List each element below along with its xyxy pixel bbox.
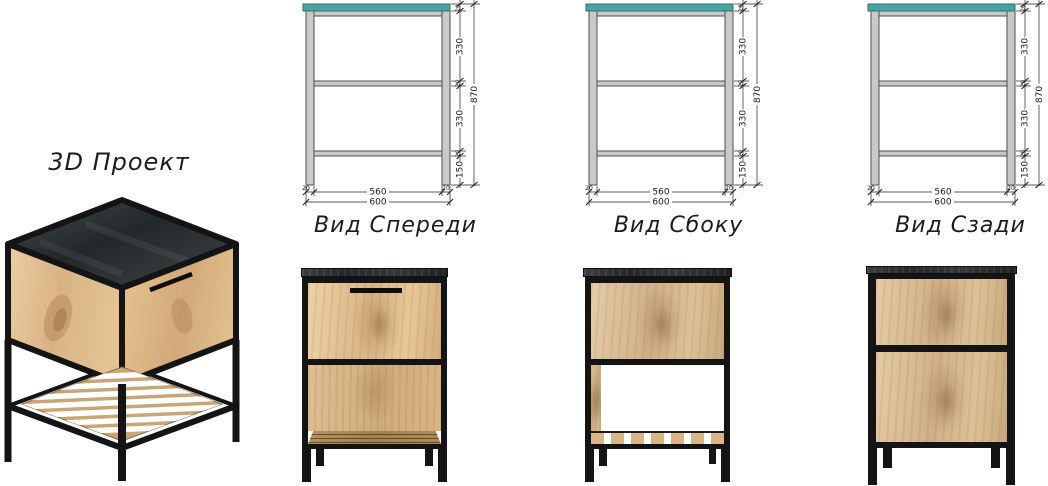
leg [1006, 448, 1015, 485]
render-front [302, 268, 447, 482]
top-slab [301, 268, 448, 277]
svg-text:20: 20 [585, 185, 593, 192]
svg-text:20: 20 [442, 185, 450, 192]
top-slab [866, 266, 1017, 274]
svg-text:20: 20 [456, 150, 462, 157]
view-label-side: Вид Сбоку [576, 213, 781, 238]
dimension-labels-horizontal: 20 20 560 600 [302, 185, 450, 208]
slatted-shelf [591, 431, 724, 444]
leg-back [425, 449, 433, 466]
svg-text:330: 330 [739, 110, 749, 127]
svg-text:330: 330 [456, 38, 466, 55]
frame-right [724, 365, 730, 449]
technical-drawing-front: 330 330 150 20 20 20 870 [293, 0, 498, 210]
page-title: 3D Проект [6, 148, 232, 176]
svg-text:600: 600 [369, 198, 386, 208]
view-label-front: Вид Спереди [293, 213, 498, 238]
leg [585, 449, 594, 482]
svg-text:20: 20 [1021, 150, 1027, 157]
leg-back [709, 449, 716, 464]
technical-drawing-side: 330 330 150 20 20 20 870 [576, 0, 781, 210]
leg [868, 448, 877, 485]
svg-text:330: 330 [456, 110, 466, 127]
leg [302, 449, 311, 482]
dimension-labels-vertical: 330 330 150 20 20 20 870 [455, 4, 480, 178]
svg-text:600: 600 [934, 198, 951, 208]
back-panel-lower [876, 352, 1007, 442]
leg-front [883, 448, 892, 468]
top-panel-teal [303, 4, 450, 11]
render-side [585, 268, 730, 482]
dimension-labels-horizontal: 20 20 560 600 [585, 185, 733, 208]
svg-text:20: 20 [739, 150, 745, 157]
design-sheet: 3D Проект [0, 0, 1048, 486]
column-back-view: 330 330 150 20 20 20 870 [858, 0, 1048, 486]
svg-text:870: 870 [1035, 86, 1045, 103]
frame-geometry [303, 4, 450, 185]
frame-geometry [586, 4, 733, 185]
svg-text:150: 150 [1021, 161, 1031, 178]
svg-text:20: 20 [1021, 4, 1027, 11]
render-back [868, 266, 1015, 485]
drawer-front-panel [308, 283, 441, 359]
svg-text:870: 870 [470, 86, 480, 103]
drawer-handle [350, 288, 402, 293]
back-panel-visible [308, 365, 441, 431]
svg-text:600: 600 [652, 198, 669, 208]
svg-text:20: 20 [1007, 185, 1015, 192]
dimension-labels-vertical: 330 330 150 20 20 20 870 [1020, 4, 1045, 178]
leg-front [991, 448, 1000, 468]
svg-text:20: 20 [1021, 80, 1027, 87]
technical-drawing: 330 330 150 20 20 20 870 [293, 0, 498, 210]
side-panel [591, 283, 724, 359]
svg-text:330: 330 [1021, 38, 1031, 55]
svg-text:20: 20 [456, 80, 462, 87]
column-front-view: 330 330 150 20 20 20 870 [293, 0, 498, 486]
svg-text:20: 20 [867, 185, 875, 192]
svg-text:330: 330 [739, 38, 749, 55]
svg-text:20: 20 [739, 4, 745, 11]
leg [721, 449, 730, 482]
svg-text:20: 20 [456, 4, 462, 11]
frame-right [441, 365, 447, 449]
leg [438, 449, 447, 482]
render-3d-perspective [0, 190, 245, 486]
technical-drawing-back: 330 330 150 20 20 20 870 [858, 0, 1048, 210]
dimension-labels-vertical: 330 330 150 20 20 20 870 [738, 4, 763, 178]
svg-text:20: 20 [725, 185, 733, 192]
dimension-labels-horizontal: 20 20 560 600 [867, 185, 1015, 208]
svg-text:330: 330 [1021, 110, 1031, 127]
frame-right [1007, 274, 1015, 448]
svg-text:150: 150 [739, 161, 749, 178]
top-panel-teal [586, 4, 733, 11]
svg-text:870: 870 [753, 86, 763, 103]
top-slab [583, 268, 732, 277]
back-panel-upper [876, 279, 1007, 345]
technical-drawing: 330 330 150 20 20 20 870 [576, 0, 781, 210]
svg-text:20: 20 [302, 185, 310, 192]
column-side-view: 330 330 150 20 20 20 870 [576, 0, 781, 486]
frame-left [868, 274, 876, 448]
view-label-back: Вид Сзади [858, 213, 1048, 238]
leg-back [599, 449, 607, 466]
cabinet-3d [8, 200, 236, 481]
svg-text:20: 20 [739, 80, 745, 87]
back-panel-edge [591, 365, 601, 431]
mid-rail [868, 345, 1015, 352]
slatted-shelf [308, 431, 441, 444]
svg-text:150: 150 [456, 161, 466, 178]
top-panel-teal [868, 4, 1015, 11]
leg-back [316, 449, 324, 466]
technical-drawing: 330 330 150 20 20 20 870 [858, 0, 1048, 210]
frame-geometry [868, 4, 1015, 185]
